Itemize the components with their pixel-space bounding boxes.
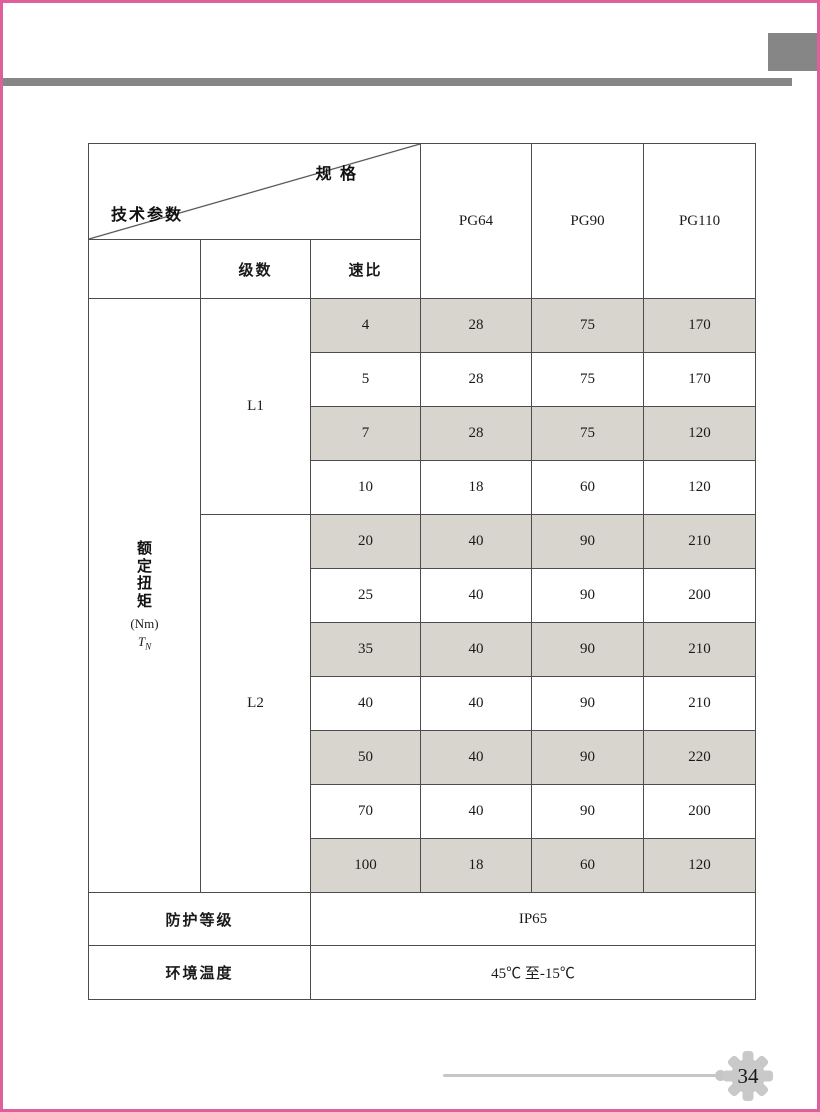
column-header-pg64: PG64 xyxy=(421,144,532,299)
table-row: 防护等级 IP65 xyxy=(89,893,756,946)
value-cell: 18 xyxy=(421,839,532,893)
stage-cell-l2: L2 xyxy=(201,515,311,893)
value-cell: 120 xyxy=(644,407,756,461)
ratio-cell: 100 xyxy=(311,839,421,893)
page-number: 34 xyxy=(722,1050,774,1102)
column-header-pg90: PG90 xyxy=(532,144,644,299)
spec-table: 规 格 技术参数 PG64 PG90 PG110 级数 速比 额 定 扭 矩 (… xyxy=(88,143,756,1000)
value-cell: 40 xyxy=(421,731,532,785)
value-cell: 40 xyxy=(421,515,532,569)
value-cell: 28 xyxy=(421,407,532,461)
header-rule-bar xyxy=(3,78,792,86)
value-cell: 40 xyxy=(421,785,532,839)
value-cell: 75 xyxy=(532,407,644,461)
value-cell: 210 xyxy=(644,515,756,569)
column-header-pg110: PG110 xyxy=(644,144,756,299)
value-cell: 210 xyxy=(644,677,756,731)
header-ratio: 速比 xyxy=(311,240,421,299)
empty-header-cell xyxy=(89,240,201,299)
ratio-cell: 35 xyxy=(311,623,421,677)
table-row: 环境温度 45℃ 至-15℃ xyxy=(89,946,756,1000)
protection-label: 防护等级 xyxy=(89,893,311,946)
ratio-cell: 70 xyxy=(311,785,421,839)
value-cell: 90 xyxy=(532,623,644,677)
value-cell: 60 xyxy=(532,461,644,515)
value-cell: 90 xyxy=(532,731,644,785)
footer-rule xyxy=(443,1074,719,1077)
value-cell: 18 xyxy=(421,461,532,515)
ratio-cell: 25 xyxy=(311,569,421,623)
value-cell: 40 xyxy=(421,623,532,677)
protection-value: IP65 xyxy=(311,893,756,946)
value-cell: 28 xyxy=(421,353,532,407)
value-cell: 60 xyxy=(532,839,644,893)
value-cell: 75 xyxy=(532,299,644,353)
value-cell: 120 xyxy=(644,461,756,515)
value-cell: 28 xyxy=(421,299,532,353)
value-cell: 120 xyxy=(644,839,756,893)
header-corner-block xyxy=(768,33,820,71)
temperature-label: 环境温度 xyxy=(89,946,311,1000)
value-cell: 170 xyxy=(644,353,756,407)
ratio-cell: 4 xyxy=(311,299,421,353)
value-cell: 75 xyxy=(532,353,644,407)
torque-unit: (Nm) xyxy=(130,616,158,632)
ratio-cell: 20 xyxy=(311,515,421,569)
value-cell: 170 xyxy=(644,299,756,353)
corner-label-params: 技术参数 xyxy=(111,201,183,225)
torque-symbol: TN xyxy=(138,634,151,652)
torque-label-cell: 额 定 扭 矩 (Nm) TN xyxy=(89,299,201,893)
ratio-cell: 7 xyxy=(311,407,421,461)
value-cell: 200 xyxy=(644,785,756,839)
temperature-value: 45℃ 至-15℃ xyxy=(311,946,756,1000)
torque-label: 额 定 扭 矩 xyxy=(137,540,152,611)
value-cell: 210 xyxy=(644,623,756,677)
value-cell: 200 xyxy=(644,569,756,623)
value-cell: 90 xyxy=(532,677,644,731)
ratio-cell: 50 xyxy=(311,731,421,785)
value-cell: 40 xyxy=(421,569,532,623)
catalog-page: 规 格 技术参数 PG64 PG90 PG110 级数 速比 额 定 扭 矩 (… xyxy=(0,0,820,1112)
corner-label-spec: 规 格 xyxy=(316,160,358,184)
header-stages: 级数 xyxy=(201,240,311,299)
value-cell: 220 xyxy=(644,731,756,785)
ratio-cell: 5 xyxy=(311,353,421,407)
corner-header-cell: 规 格 技术参数 xyxy=(89,144,421,240)
stage-cell-l1: L1 xyxy=(201,299,311,515)
value-cell: 90 xyxy=(532,785,644,839)
ratio-cell: 10 xyxy=(311,461,421,515)
value-cell: 90 xyxy=(532,515,644,569)
value-cell: 40 xyxy=(421,677,532,731)
value-cell: 90 xyxy=(532,569,644,623)
ratio-cell: 40 xyxy=(311,677,421,731)
table-row: 额 定 扭 矩 (Nm) TN L1 4 28 75 170 xyxy=(89,299,756,353)
